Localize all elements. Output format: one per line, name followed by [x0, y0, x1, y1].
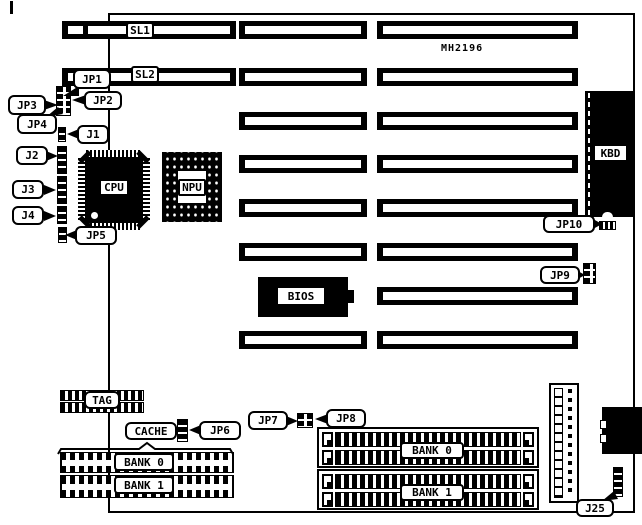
callout-jp1: JP1 [73, 69, 111, 89]
pointer-j3 [44, 185, 56, 195]
callout-jp2: JP2 [84, 91, 122, 110]
callout-jp6: JP6 [199, 421, 241, 440]
cpu-corner-tick [80, 152, 90, 162]
cpu-corner-tick [138, 152, 148, 162]
callout-jp7: JP7 [248, 411, 288, 430]
callout-j25: J25 [576, 499, 614, 517]
callout-j1: J1 [77, 125, 109, 144]
motherboard-diagram: MH2196 CPU NPU KBD BIOS [0, 0, 642, 525]
callout-jp5: JP5 [75, 226, 117, 245]
pointer-jp3 [44, 100, 58, 110]
callout-j3: J3 [12, 180, 44, 199]
callout-jp4: JP4 [17, 114, 57, 134]
simm-bank0-label: BANK 0 [400, 442, 464, 459]
callout-jp10: JP10 [543, 215, 595, 233]
cache-bank1-label: BANK 1 [114, 476, 174, 494]
slot-label-sl1: SL1 [126, 22, 154, 39]
slot-label-sl2: SL2 [131, 66, 159, 83]
simm-bank1-label: BANK 1 [400, 484, 464, 501]
cpu-corner-tick [138, 217, 148, 227]
pointer-j4 [44, 211, 56, 221]
tag-label: TAG [84, 391, 120, 409]
callout-jp9: JP9 [540, 266, 580, 284]
cache-label: CACHE [125, 422, 177, 440]
callout-j2: J2 [16, 146, 48, 165]
cache-bank0-label: BANK 0 [114, 453, 174, 471]
callout-j4: J4 [12, 206, 44, 225]
callout-jp8: JP8 [326, 409, 366, 428]
callout-jp3: JP3 [8, 95, 46, 115]
